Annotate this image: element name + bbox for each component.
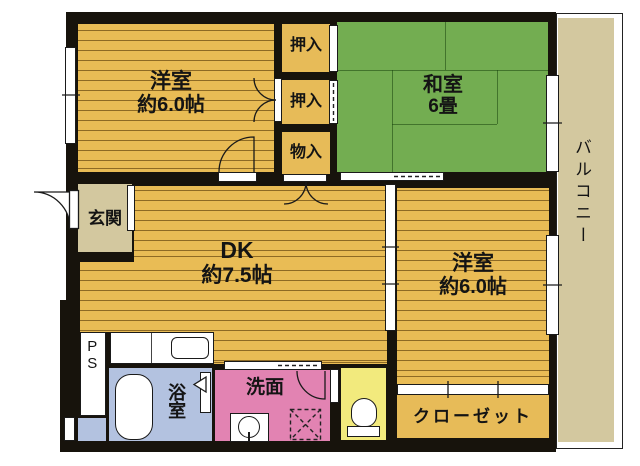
bedroom-left-name: 洋室 bbox=[96, 70, 246, 94]
room-dk-lower bbox=[214, 332, 387, 364]
washitsu-size: 6畳 bbox=[368, 96, 518, 117]
door-oshiire2-bedroom bbox=[274, 78, 282, 122]
label-closet: クローゼット bbox=[397, 407, 549, 426]
sliding-door-dk-bedroomright bbox=[385, 184, 396, 331]
bedroom-left-size: 約6.0帖 bbox=[96, 94, 246, 116]
label-bedroom-left: 洋室 約6.0帖 bbox=[96, 70, 246, 116]
door-oshiire1-front bbox=[329, 25, 338, 72]
label-monoire: 物入 bbox=[282, 144, 330, 162]
label-genkan: 玄関 bbox=[78, 209, 132, 228]
label-oshiire-1: 押入 bbox=[282, 37, 330, 55]
entrance-door-arc bbox=[34, 192, 70, 228]
door-bathroom bbox=[200, 372, 211, 413]
washbasin-tap-icon bbox=[248, 432, 250, 441]
floor-plan: 洋室 約6.0帖 押入 押入 物入 和室 6畳 バルコニー 玄関 DK 約7.5… bbox=[0, 0, 640, 466]
bathtub-icon bbox=[115, 374, 153, 440]
door-washroom-top bbox=[224, 361, 322, 370]
door-oshiire2-front bbox=[329, 80, 338, 124]
label-washitsu: 和室 6畳 bbox=[368, 74, 518, 118]
dk-name: DK bbox=[162, 238, 312, 264]
door-monoire-front bbox=[283, 174, 327, 182]
kitchen-sink-icon bbox=[171, 337, 209, 359]
tatami-line bbox=[337, 70, 548, 71]
sliding-door-closet bbox=[397, 384, 549, 395]
window-washitsu-balcony bbox=[546, 75, 559, 172]
tatami-line bbox=[445, 22, 446, 70]
door-bedroomleft-threshold bbox=[218, 172, 257, 182]
counter-divider bbox=[151, 333, 152, 363]
window-left bbox=[65, 47, 76, 144]
window-bottom-left bbox=[64, 417, 75, 441]
label-dk: DK 約7.5帖 bbox=[162, 238, 312, 287]
toilet-bowl-icon bbox=[351, 398, 377, 427]
label-balcony: バルコニー bbox=[572, 138, 591, 248]
label-ps: PS bbox=[83, 338, 100, 372]
tatami-line bbox=[392, 124, 497, 125]
toilet-tank-icon bbox=[347, 426, 380, 437]
label-oshiire-2: 押入 bbox=[282, 93, 330, 111]
bathroom-annex bbox=[78, 418, 106, 441]
dk-size: 約7.5帖 bbox=[162, 264, 312, 288]
label-bathroom: 浴室 bbox=[166, 383, 186, 419]
door-washitsu-dk bbox=[340, 172, 444, 181]
label-bedroom-right: 洋室 約6.0帖 bbox=[398, 252, 548, 298]
door-toilet bbox=[330, 369, 339, 403]
washitsu-name: 和室 bbox=[368, 74, 518, 96]
label-washroom: 洗面 bbox=[215, 377, 315, 398]
bedroom-right-name: 洋室 bbox=[398, 252, 548, 276]
bedroom-right-size: 約6.0帖 bbox=[398, 276, 548, 298]
